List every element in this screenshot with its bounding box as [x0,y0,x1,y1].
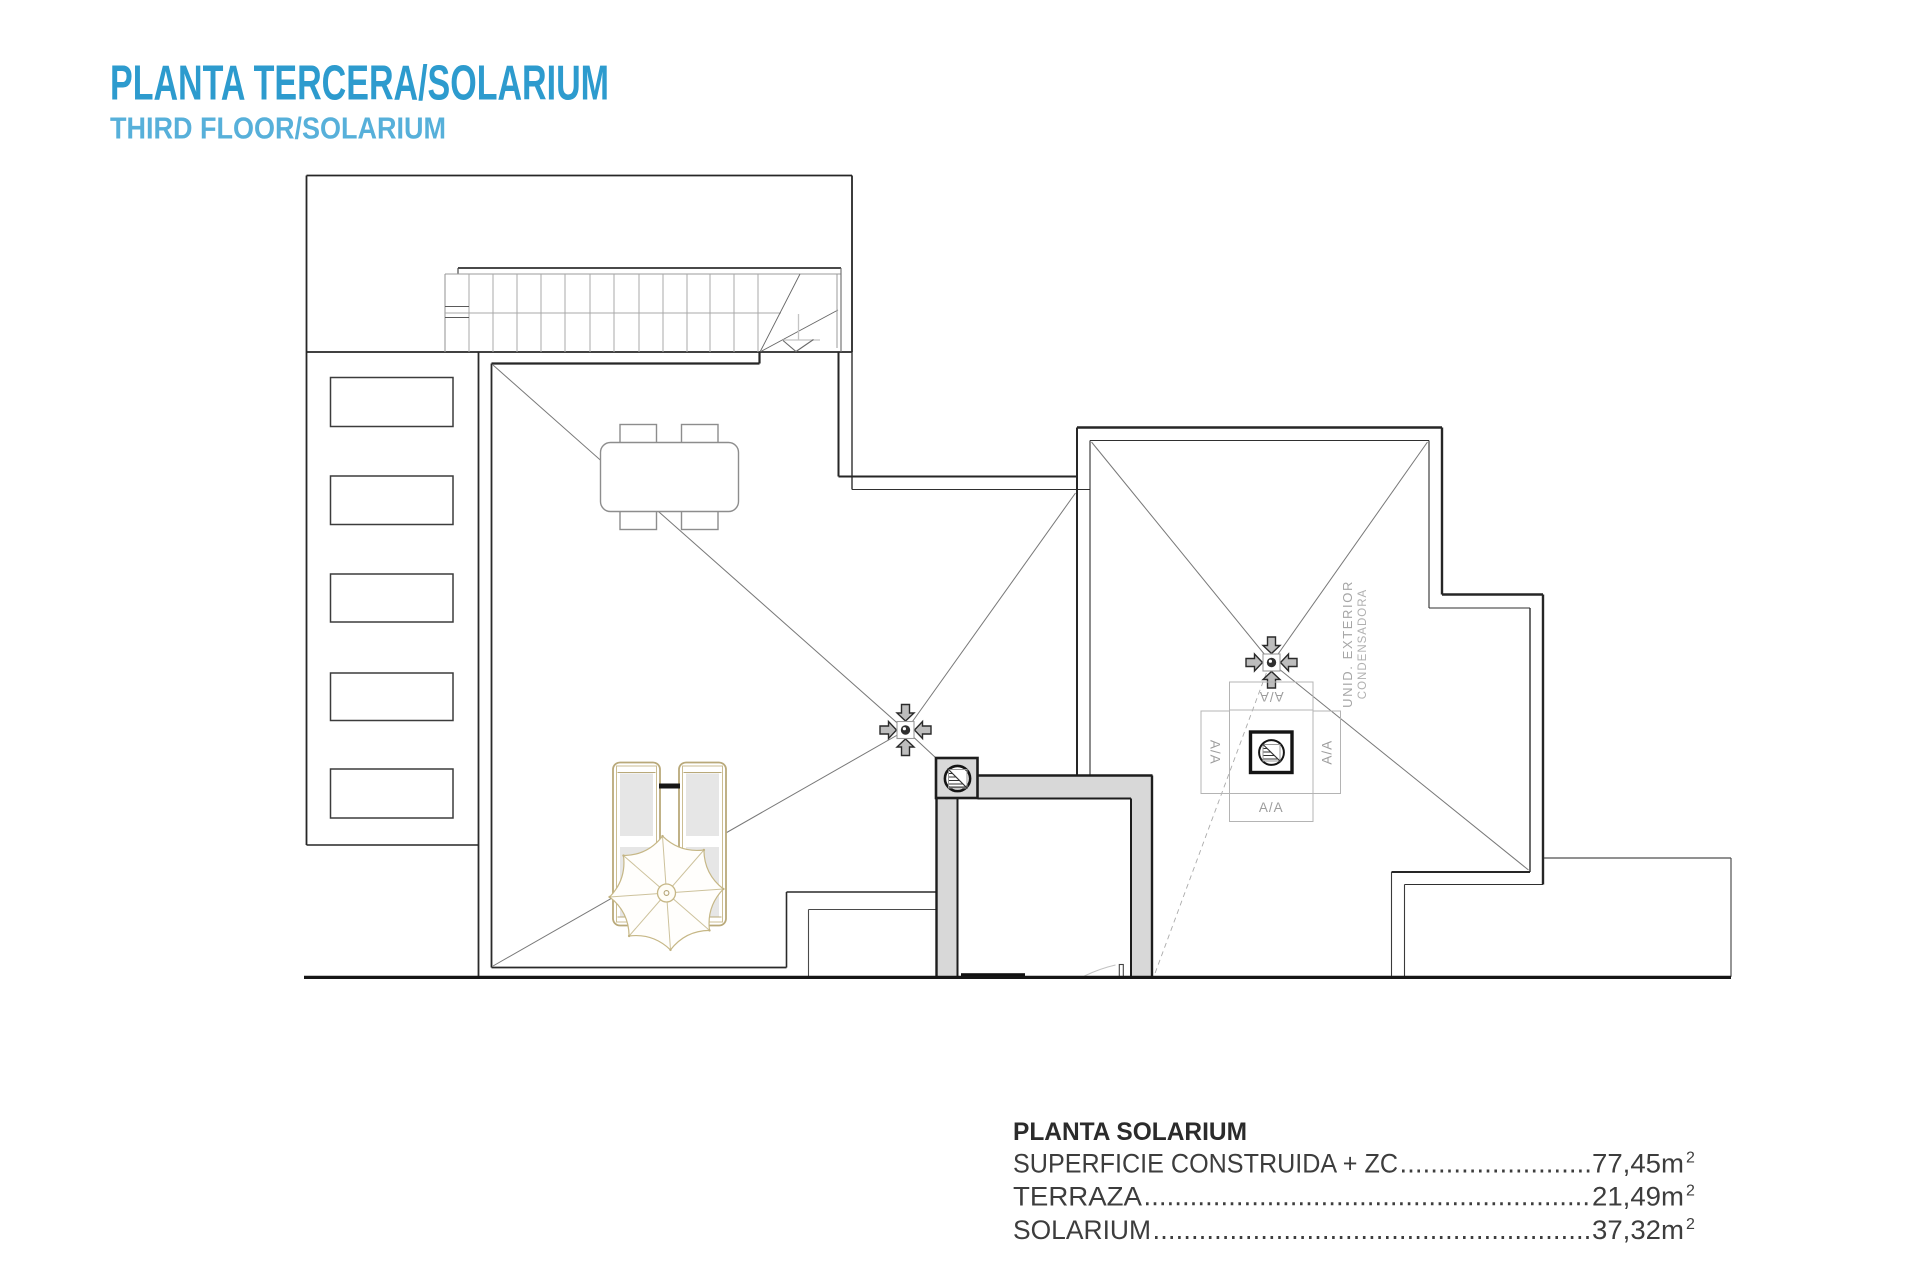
svg-text:THIRD FLOOR/SOLARIUM: THIRD FLOOR/SOLARIUM [110,111,446,146]
svg-text:CONDENSADORA: CONDENSADORA [1357,589,1369,699]
svg-text:A/A: A/A [1259,689,1284,704]
svg-text:A/A: A/A [1259,800,1284,815]
svg-text:PLANTA SOLARIUM: PLANTA SOLARIUM [1013,1118,1247,1146]
svg-text:21,49m: 21,49m [1592,1181,1684,1211]
svg-text:A/A: A/A [1320,740,1335,765]
svg-text:2: 2 [1686,1216,1695,1233]
svg-text:37,32m: 37,32m [1592,1215,1684,1245]
svg-text:SUPERFICIE CONSTRUIDA + ZC: SUPERFICIE CONSTRUIDA + ZC [1013,1149,1398,1179]
svg-text:2: 2 [1686,1150,1695,1167]
svg-text:TERRAZA: TERRAZA [1013,1181,1142,1211]
svg-text:77,45m: 77,45m [1592,1149,1684,1179]
svg-text:2: 2 [1686,1182,1695,1199]
svg-text:UNID. EXTERIOR: UNID. EXTERIOR [1340,580,1355,708]
svg-text:A/A: A/A [1208,740,1223,765]
svg-text:SOLARIUM: SOLARIUM [1013,1215,1151,1245]
svg-text:PLANTA TERCERA/SOLARIUM: PLANTA TERCERA/SOLARIUM [110,57,609,111]
